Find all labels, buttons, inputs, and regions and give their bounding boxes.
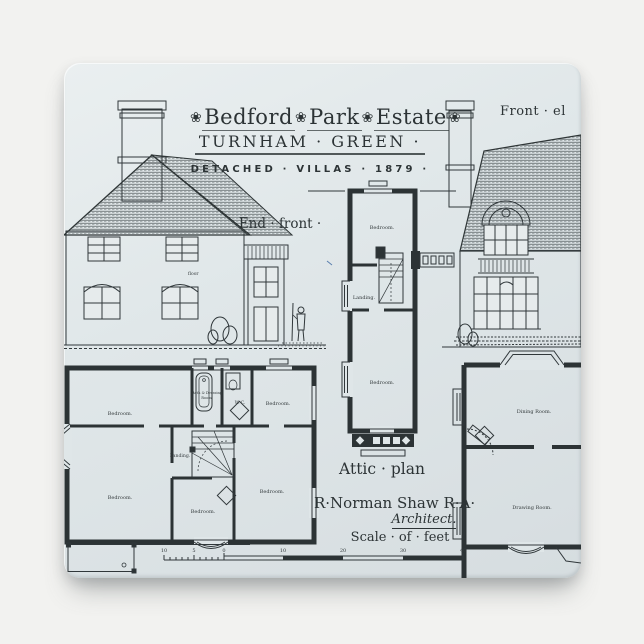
porch-steps: [361, 450, 405, 456]
rosette-icon: ❀: [362, 110, 374, 126]
hedge: [454, 337, 581, 345]
room-label: Bedroom.: [108, 411, 133, 417]
upper-windows: [88, 237, 198, 261]
bow-window: [508, 542, 544, 554]
walking-staff: [292, 303, 293, 341]
room-label: Dining Room.: [517, 409, 552, 415]
architect-title: Architect.: [362, 512, 486, 527]
chimney-breast: [411, 251, 420, 269]
room-label: Bedroom.: [108, 495, 133, 501]
front-elevation: [442, 101, 581, 347]
first-floor-plan: Bedroom. Bath & Dressing Room. W. C. Bed…: [64, 359, 319, 573]
large-window: [471, 277, 541, 329]
canted-bay-window: [500, 351, 564, 370]
product-photo: floor: [0, 0, 644, 644]
left-bay-window-2: [342, 362, 353, 397]
figure-person: [278, 303, 326, 346]
architect-name: R·Norman Shaw R·A·: [314, 494, 466, 512]
subtitle-detail: DETACHED · VILLAS · 1879 ·: [190, 164, 430, 175]
window: [192, 359, 208, 373]
porch-plan: [352, 434, 414, 456]
rosette-icon: ❀: [295, 110, 307, 126]
balcony: [478, 259, 534, 273]
scale-number: 10: [161, 548, 167, 554]
front-elevation-label: Front · el: [500, 104, 581, 119]
window: [266, 359, 292, 373]
floor-note: floor: [188, 271, 199, 277]
stairs: [190, 431, 234, 477]
toilet: [226, 373, 240, 390]
chimney-cap-detail: [420, 253, 454, 267]
room-label: Landing.: [170, 453, 191, 459]
room-label: Bedroom.: [370, 225, 395, 231]
room-label: Bedroom.: [266, 401, 291, 407]
magnet-product: floor: [64, 63, 581, 578]
bay-window: [64, 424, 72, 469]
scale-number: 20: [340, 548, 346, 554]
room-label: Bath & Dressing: [192, 391, 223, 395]
room-label: Bedroom.: [260, 489, 285, 495]
attic-stairs: [376, 247, 403, 303]
rosette-icon: ❀: [449, 110, 461, 126]
balcony-annex: [244, 245, 288, 345]
room-label: Room.: [201, 396, 213, 400]
bow-window: [194, 537, 228, 549]
blue-mark: [327, 261, 332, 265]
subtitle: TURNHAM · GREEN ·: [195, 131, 425, 155]
attic-plan: Bedroom. Landing. Bedroom.: [308, 181, 456, 456]
room-label: Bedroom.: [370, 380, 395, 386]
room-label: Landing.: [353, 295, 376, 301]
room-label: Drawing Room.: [512, 505, 552, 511]
scale-number: 5: [192, 548, 195, 554]
scale-bar: 10 5 0 10 20 30 40: [161, 548, 466, 560]
bush: [208, 317, 237, 344]
estate-title: ❀Bedford❀Park❀Estate❀: [190, 105, 430, 129]
room-label: Bedroom.: [191, 509, 216, 515]
attic-plan-label: Attic · plan: [322, 460, 442, 478]
rosette-icon: ❀: [190, 110, 202, 126]
scale-number: 30: [400, 548, 406, 554]
window: [309, 386, 319, 420]
lower-windows: [84, 285, 198, 320]
end-front-label: End · front ·: [230, 216, 330, 232]
left-bay-window-1: [342, 281, 353, 311]
door-swing: [467, 429, 493, 455]
scale-label: Scale · of · feet: [340, 530, 460, 545]
title-block: ❀Bedford❀Park❀Estate❀ TURNHAM · GREEN · …: [190, 105, 430, 175]
scale-number: 10: [280, 548, 286, 554]
room-label: W. C.: [235, 400, 246, 405]
ground-floor-plan: Dining Room. Drawing Room.: [453, 351, 581, 578]
